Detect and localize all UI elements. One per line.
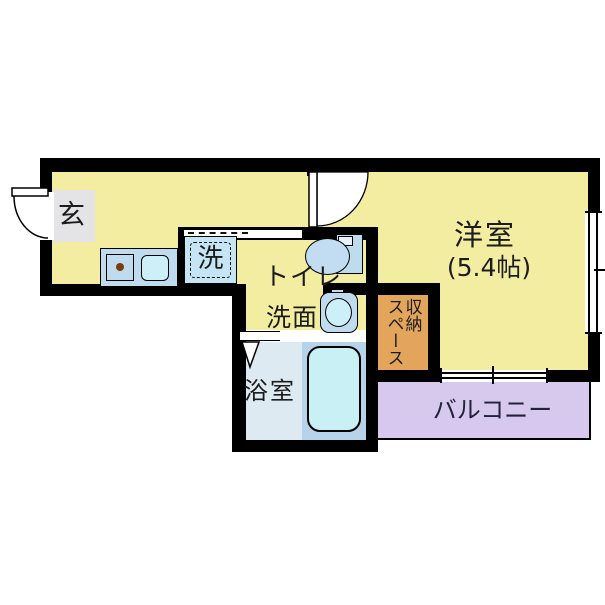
label-washer: 洗 <box>184 245 237 275</box>
bath-folding-door-icon <box>242 342 259 367</box>
floorplan-canvas: 玄 洗 トイレ 洗面 洋室 (5.4帖) 収納 スペース 浴室 バルコニー <box>0 0 605 605</box>
entrance-door-leaf <box>12 188 48 196</box>
interior-door-leaf <box>309 172 317 227</box>
label-storage-col-left: スペース <box>383 298 403 366</box>
label-entrance: 玄 <box>58 200 85 231</box>
label-toilet: トイレ <box>264 263 342 292</box>
interior-door-arc <box>317 172 368 226</box>
label-washbasin: 洗面 <box>266 304 318 333</box>
label-balcony: バルコニー <box>400 397 585 425</box>
entrance-door-arc <box>14 196 48 238</box>
label-western-room: 洋室 <box>420 219 550 252</box>
label-storage-col-right: 収納 <box>401 298 421 332</box>
label-bathroom: 浴室 <box>244 378 296 406</box>
label-western-room-size: (5.4帖) <box>420 254 558 283</box>
